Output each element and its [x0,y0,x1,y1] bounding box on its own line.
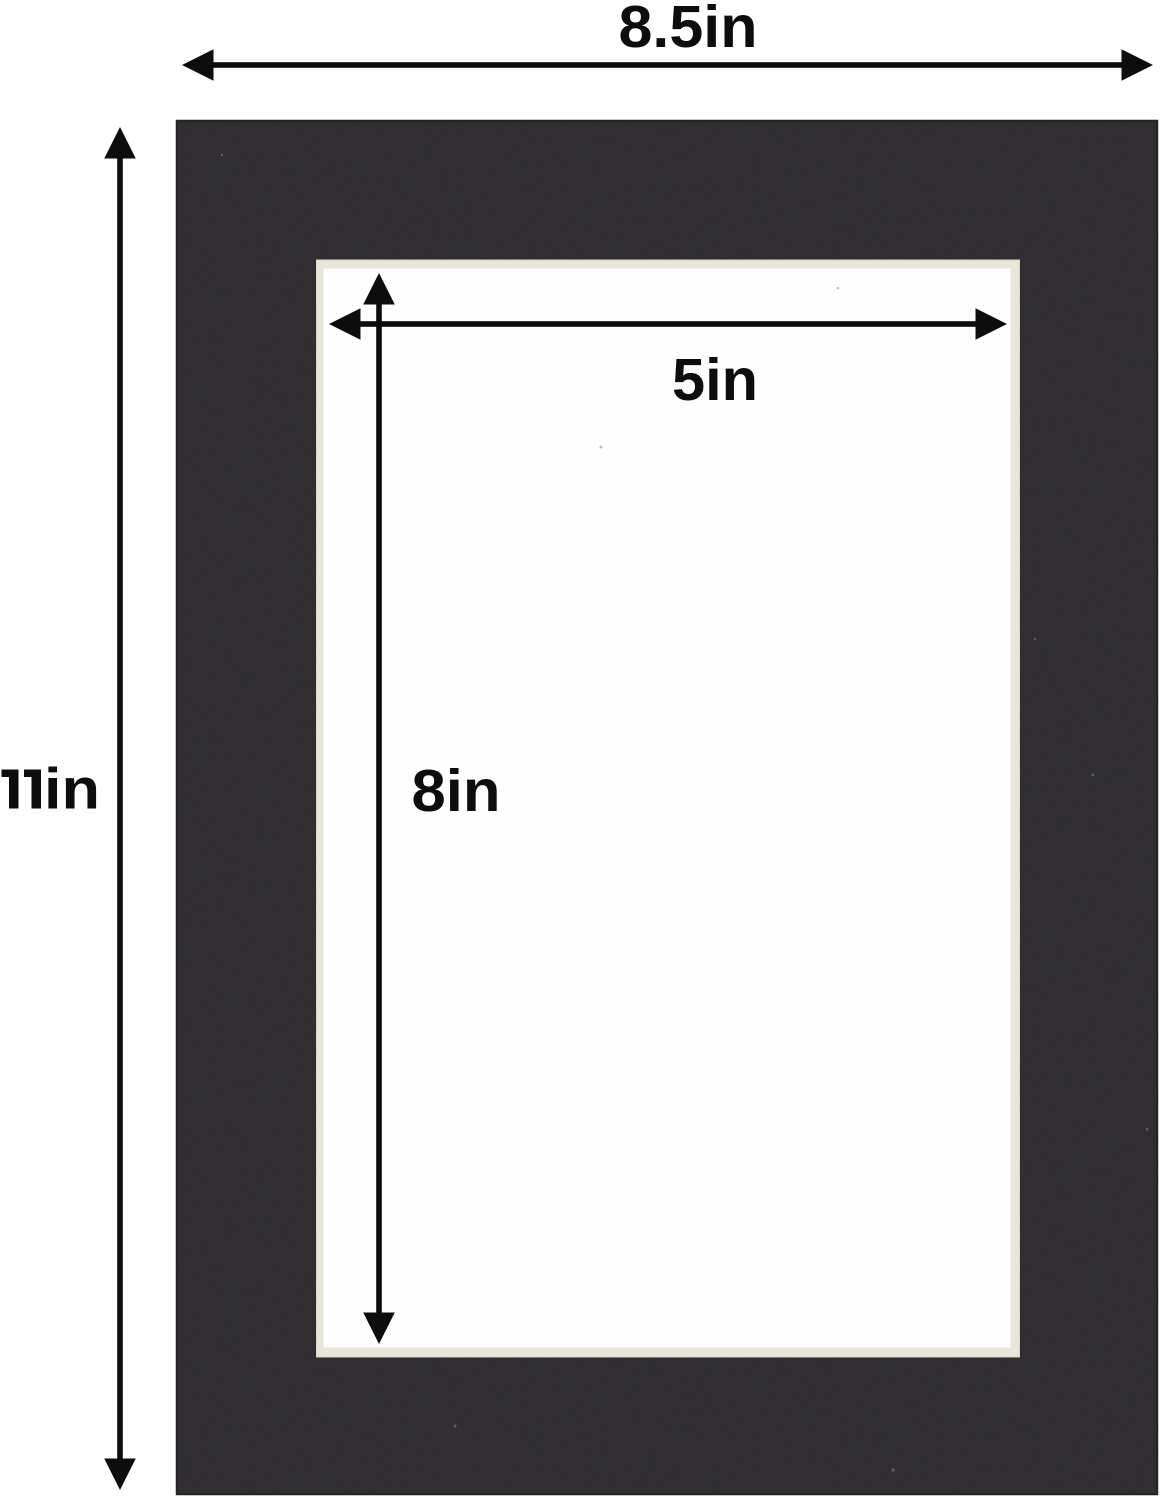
svg-text:5in: 5in [672,347,758,413]
svg-text:8in: 8in [412,758,501,824]
svg-text:8.5in: 8.5in [619,0,758,60]
svg-text:in: in [44,758,100,822]
